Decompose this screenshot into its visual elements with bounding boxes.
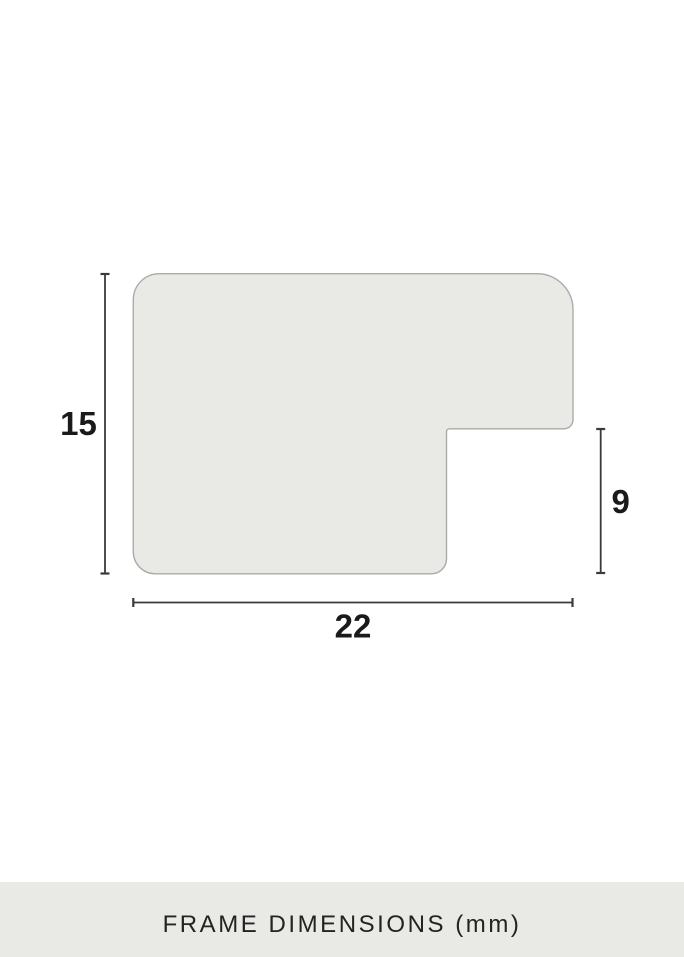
svg-text:22: 22 (335, 608, 372, 645)
svg-text:9: 9 (612, 483, 630, 520)
svg-text:15: 15 (60, 405, 97, 442)
